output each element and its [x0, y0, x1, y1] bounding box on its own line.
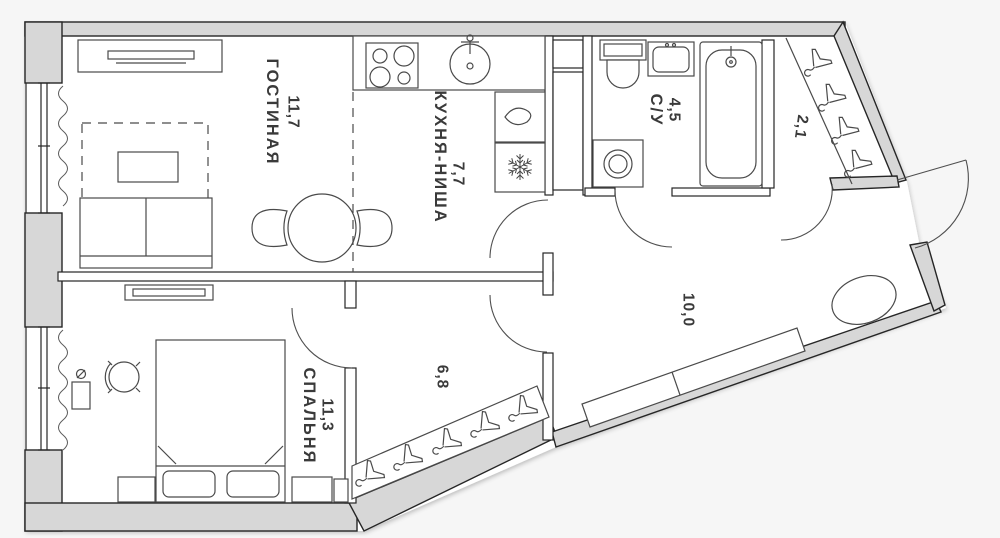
wall-living-bedroom — [58, 272, 553, 281]
nightstand-right — [292, 477, 332, 502]
vent-shaft-large — [553, 72, 583, 190]
room-label-living: ГОСТИНАЯ — [263, 58, 281, 165]
stove-icon — [366, 43, 418, 88]
floor-plan: ГОСТИНАЯ 11,7 КУХНЯ-НИША 7,7 С/У 4,5 2,1… — [0, 0, 1000, 538]
bedroom-tv-console — [125, 285, 213, 300]
coffee-table — [118, 152, 178, 182]
wall-left-pier — [25, 213, 62, 327]
wall-bottom — [25, 503, 357, 531]
wall-bathroom-bottom-right — [672, 188, 770, 196]
room-area-living: 11,7 — [285, 95, 302, 128]
wall-bathroom-right — [762, 40, 774, 188]
pillow — [163, 471, 215, 497]
wall-hall-stub — [543, 253, 553, 295]
wall-bathroom-left — [583, 36, 592, 195]
room-area-corridor: 6,8 — [434, 365, 451, 390]
room-label-kitchen: КУХНЯ-НИША — [431, 90, 449, 223]
bedside-shelf — [334, 479, 348, 502]
wall-wardrobe-bottom — [830, 176, 899, 190]
floor-plan-svg: ГОСТИНАЯ 11,7 КУХНЯ-НИША 7,7 С/У 4,5 2,1… — [0, 0, 1000, 538]
dining-chair-right — [357, 210, 392, 247]
wall-top — [25, 22, 845, 36]
sofa — [80, 198, 212, 268]
pillow — [227, 471, 279, 497]
room-label-bedroom: СПАЛЬНЯ — [300, 367, 318, 464]
wall-left-corner — [25, 22, 62, 83]
bathtub-icon — [700, 42, 762, 186]
dining-chair-left — [252, 210, 287, 247]
room-area-wardrobe: 2,1 — [791, 114, 811, 141]
wall-bedroom-stub — [345, 281, 356, 308]
wall-kitchen-right — [545, 36, 553, 195]
room-area-bathroom: 4,5 — [666, 98, 683, 123]
dining-table — [288, 194, 356, 262]
nightstand-left — [118, 477, 155, 502]
kitchen-cabinet — [495, 92, 545, 142]
room-area-hallway: 10,0 — [680, 293, 697, 327]
room-label-bathroom: С/У — [647, 94, 665, 127]
bed — [156, 340, 285, 502]
vent-shaft-small — [553, 40, 583, 68]
wall-bathroom-bottom-left — [585, 188, 615, 196]
wall-hall-corridor — [543, 353, 553, 440]
bathroom-sink-icon — [648, 42, 694, 76]
room-area-bedroom: 11,3 — [319, 398, 336, 431]
washing-machine-icon — [593, 140, 643, 187]
room-area-kitchen: 7,7 — [450, 162, 467, 187]
